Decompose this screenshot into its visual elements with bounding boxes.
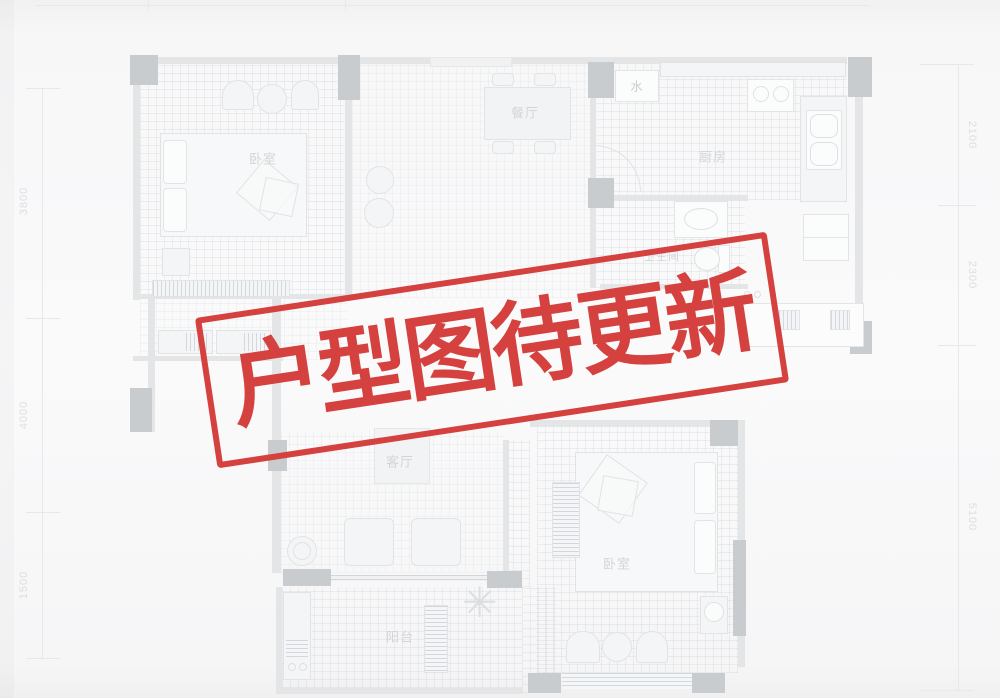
stool-icon (602, 632, 632, 662)
wall-column (338, 55, 360, 100)
pillow-icon (694, 520, 716, 574)
chair-icon (534, 141, 556, 154)
wall-segment (503, 440, 509, 575)
wall-segment (133, 57, 140, 300)
room-label-living: 客厅 (386, 452, 414, 471)
wall-column (130, 55, 158, 85)
dim-label-right-5100: 5100 (966, 503, 978, 531)
dim-label-left-1500: 1500 (18, 571, 30, 599)
dimension-tick (26, 88, 60, 89)
sink-basin-icon (810, 114, 838, 138)
dimension-tick (26, 658, 60, 659)
burner-icon (753, 86, 769, 102)
radiator-icon (552, 482, 580, 558)
chair-icon (534, 73, 556, 86)
wall-column (733, 540, 746, 636)
chair-icon (492, 141, 514, 154)
wall-column (692, 673, 725, 693)
wall-column (528, 673, 561, 693)
pillow-icon (694, 462, 716, 514)
closet-icon (152, 280, 290, 297)
pillow-icon (163, 140, 187, 184)
wall-segment (276, 688, 522, 694)
chair-icon (566, 631, 600, 663)
room-label-bedroom-2: 卧室 (603, 554, 631, 573)
wall-column (710, 420, 738, 446)
burner-icon (773, 86, 789, 102)
dimension-tick (938, 345, 976, 346)
dim-label-left-4000: 4000 (18, 401, 30, 429)
chair-icon (636, 631, 668, 663)
wall-column (588, 62, 614, 98)
wall-segment (855, 95, 863, 323)
water-heater-vent (286, 640, 308, 660)
room-label-balcony: 阳台 (386, 627, 414, 646)
stool-icon (366, 166, 394, 194)
room-label-kitchen: 厨房 (699, 147, 727, 166)
knob-icon (299, 663, 307, 671)
wall-column (283, 569, 331, 586)
dimension-tick (920, 690, 974, 691)
dimension-tick (938, 205, 976, 206)
dimension-tick (26, 318, 60, 319)
dimension-tick (148, 1, 149, 10)
sink-basin-icon (810, 142, 838, 166)
washer-icon (778, 310, 800, 330)
blanket-icon (597, 475, 639, 517)
room-label-bedroom-1: 卧室 (249, 149, 277, 168)
dim-label-left-3800: 3800 (18, 187, 30, 215)
room-label-dining: 餐厅 (511, 103, 539, 122)
corner-table-inner (704, 602, 724, 622)
wall-segment (276, 587, 282, 693)
dim-label-right-2300: 2300 (966, 261, 978, 289)
basin-icon (684, 208, 718, 230)
pillow-icon (163, 188, 187, 232)
sofa-icon (411, 518, 461, 566)
stool-icon (257, 84, 287, 114)
dimension-line-left (42, 88, 43, 658)
room-label-water: 水 (630, 78, 643, 95)
chair-icon (492, 73, 514, 86)
wardrobe-arch-icon (291, 80, 319, 110)
wardrobe-arch-icon (222, 80, 254, 110)
blanket-icon (259, 177, 299, 217)
dimension-line-right (958, 64, 959, 690)
dimension-tick (26, 512, 60, 513)
window (562, 673, 692, 689)
plant-icon: ✳ (462, 582, 497, 624)
knob-icon (288, 663, 296, 671)
kitchen-counter (660, 62, 846, 77)
dimension-line-top (35, 5, 870, 6)
dim-label-right-2100: 2100 (966, 121, 978, 149)
stool-icon (364, 198, 394, 228)
lounge-chair-icon (424, 605, 448, 673)
window (430, 57, 512, 67)
left-edge-shade (0, 0, 14, 698)
fridge-door-line (803, 237, 849, 238)
washer-icon (830, 310, 850, 330)
dimension-tick (345, 1, 346, 10)
dimension-tick (920, 64, 974, 65)
nightstand-icon (162, 248, 190, 276)
floor-plan-page: { "stamp": { "text": "户型图待更新", "color": … (0, 0, 1000, 698)
side-table-inner (293, 542, 311, 560)
sofa-icon (344, 518, 394, 566)
wall-column (848, 57, 872, 97)
wall-column (130, 388, 152, 432)
